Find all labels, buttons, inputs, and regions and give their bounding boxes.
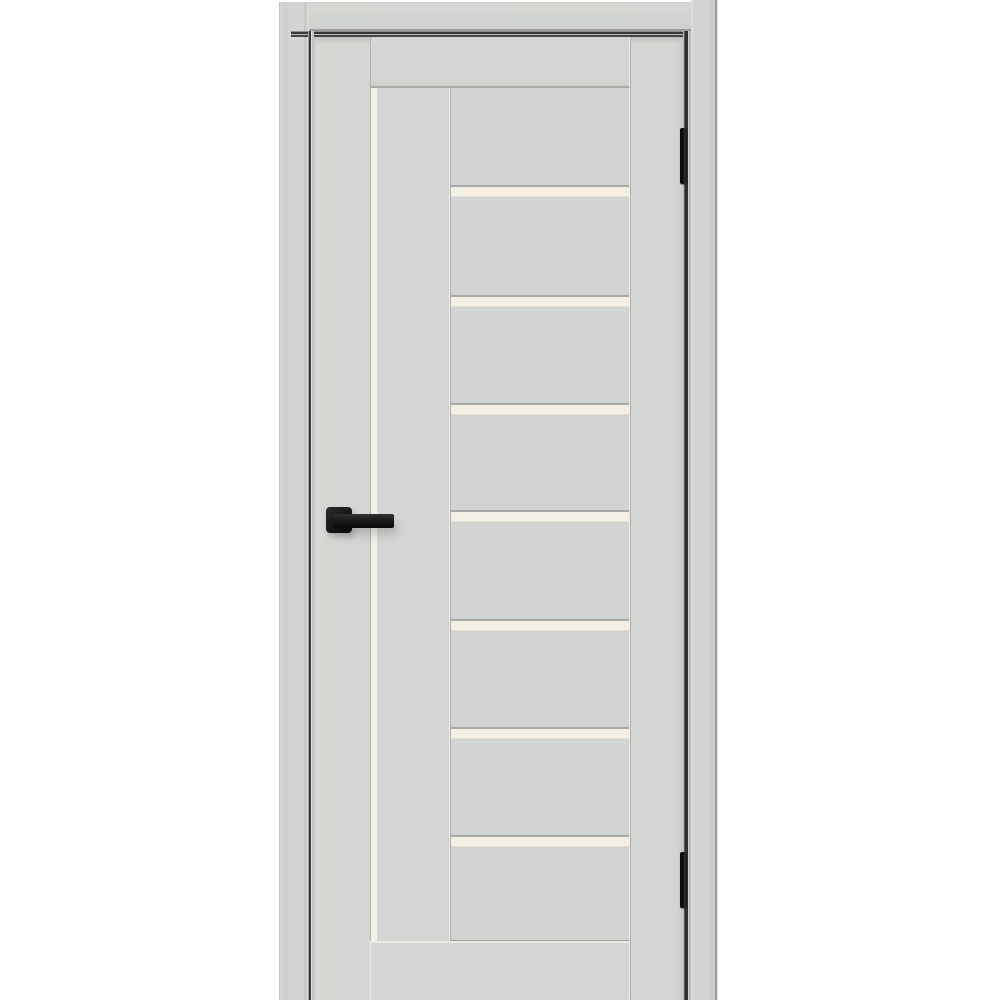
- bottom-hinge: [680, 852, 687, 908]
- horizontal-glass-insert: [451, 295, 629, 307]
- horizontal-glass-insert: [451, 835, 629, 847]
- horizontal-glass-insert: [451, 727, 629, 739]
- door-bottom-rail: [370, 941, 630, 1000]
- door-top-rail: [370, 37, 630, 88]
- door-frame-right-casing: [691, 0, 718, 1000]
- door-right-stile: [630, 37, 683, 1000]
- door-handle-lever: [333, 514, 394, 528]
- horizontal-glass-insert: [451, 619, 629, 631]
- horizontal-glass-insert: [451, 510, 629, 522]
- door-panel-column: [450, 88, 630, 941]
- horizontal-glass-insert: [451, 403, 629, 415]
- door-product-photo: [0, 0, 1000, 1000]
- top-hinge: [680, 128, 687, 184]
- horizontal-glass-insert: [451, 185, 629, 197]
- door-frame-left-casing: [279, 2, 309, 1000]
- door-frame-head-casing: [287, 2, 691, 31]
